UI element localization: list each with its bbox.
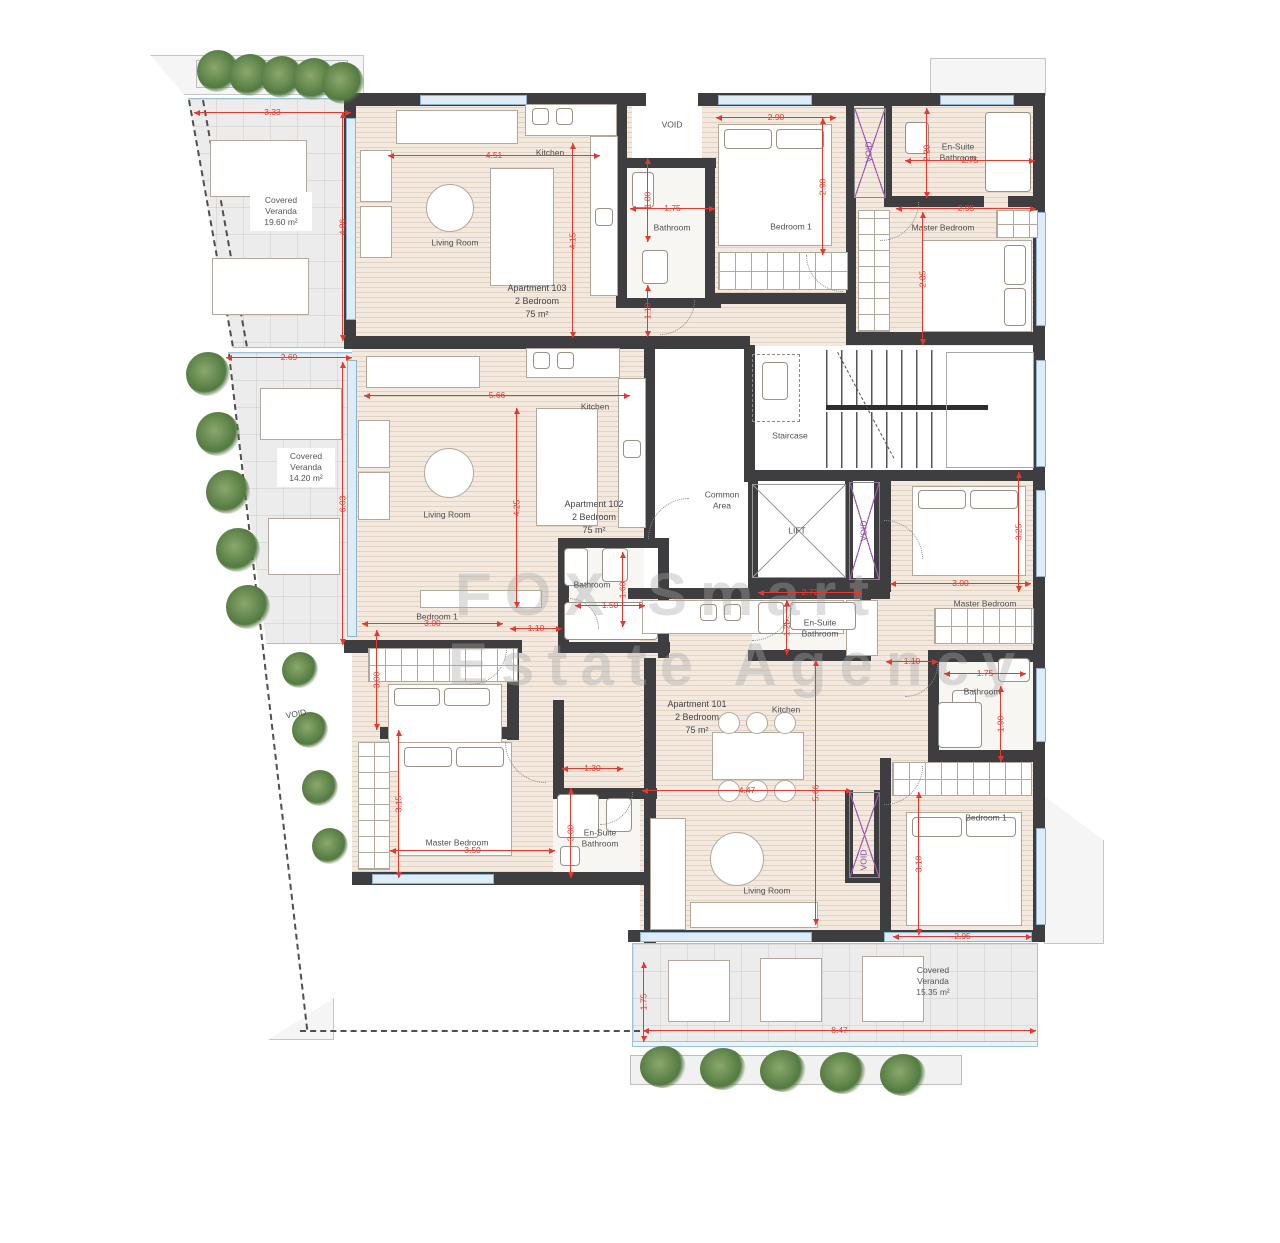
veranda-label-3: Covered Veranda 15.35 m² [898,962,968,1001]
dimension-label: 3.00 [371,672,381,689]
window [1036,490,1046,577]
dimension: 1.25 [786,600,787,655]
dimension-label: 3.15 [393,796,403,813]
coffee-table [710,832,764,886]
dimension-label: 2.90 [817,178,827,195]
veranda-area: 14.20 m² [289,473,323,483]
dimension: 3.25 [1018,472,1019,592]
room-label-staircase: Staircase [772,431,807,442]
wall [928,750,1038,762]
outdoor-sofa [210,140,307,197]
dimension-label: 2.90 [766,112,787,122]
apartment-type: 2 Bedroom [675,712,719,722]
sink-icon [595,208,613,226]
room-label-void-shaft-top: VOID [864,142,875,163]
room-label-bathroom-101: Bathroom [964,687,1001,698]
veranda-glass-edge [632,1041,1038,1047]
dimension: 4.86 [342,112,343,341]
dimension: 1.75 [630,208,715,209]
dimension-label: 3.50 [462,845,483,855]
dimension: 1.10 [886,661,938,662]
plant [302,770,338,806]
room-label-lift: LIFT [788,526,805,537]
coffee-table [426,184,474,232]
stair-steps [826,350,946,406]
dimension: 2.85 [922,212,923,345]
apartment-type: 2 Bedroom [515,296,559,306]
room-label-bedroom1-101: Bedroom 1 [965,813,1007,824]
wall [853,332,1045,345]
dimension: 3.00 [890,583,1031,584]
pillow [1004,288,1026,326]
dimension: 2.69 [226,357,352,358]
dimension: 1.50 [575,605,645,606]
apartment-type: 2 Bedroom [572,512,616,522]
dimension-label: 1.10 [902,656,923,666]
dimension-label: 4.15 [567,232,577,249]
dimension-label: 1.75 [638,994,648,1011]
outdoor-seat [668,960,730,1022]
dimension-label: 5.66 [810,784,820,801]
dimension-label: 5.66 [487,390,508,400]
room-label-ensuite-102: En-Suite Bathroom [569,827,631,848]
pillow [970,490,1018,509]
armchair [358,420,390,468]
wall [705,158,715,308]
room-label-bathroom-102: Bathroom [574,580,611,591]
dimension: 2.20 [926,108,927,198]
wall [715,293,850,304]
dimension-label: 2.72 [800,587,821,597]
room-label-bathroom-103: Bathroom [654,223,691,234]
dimension-label: 2.95 [952,931,973,941]
plant [760,1050,806,1092]
window [940,95,1014,105]
dimension-label: 2.20 [921,145,931,162]
dimension-label: 3.00 [950,578,971,588]
pillow [1004,245,1026,285]
stair-steps [826,412,946,468]
room-label-living-room-103: Living Room [431,238,478,249]
dimension: 3.15 [398,730,399,878]
window [420,95,527,105]
dimension-label: 2.95 [956,203,977,213]
dimension: 3.33 [194,112,351,113]
dining-table [712,732,804,780]
dimension: 2.75 [905,160,1035,161]
stove-icon [533,352,550,369]
dimension-label: 3.33 [262,107,283,117]
pillow [456,747,504,767]
veranda-name: Covered Veranda [917,965,949,986]
dimension: 6.03 [342,362,343,645]
plant [880,1054,926,1096]
plant [226,585,270,629]
dimension: 2.72 [758,592,862,593]
plant [640,1046,686,1088]
plant [282,652,318,688]
stair-landing [946,352,1034,468]
room-label-living-room-101: Living Room [743,886,790,897]
apartment-name: Apartment 103 [507,283,566,293]
window [640,932,812,942]
apartment-area: 75 m² [582,525,605,535]
pillow [776,129,824,149]
plant [186,352,230,396]
stove-icon [557,352,574,369]
wardrobe [358,742,390,870]
sofa [366,356,480,388]
outdoor-seat [760,958,822,1022]
dimension-label: 4.25 [511,500,521,517]
wall [616,158,716,168]
room-label-void-shaft-bottom: VOID [859,850,870,871]
floor-plan: FOX Smart Estate Agency Living Room Kitc… [0,0,1280,1243]
stove-icon [556,108,573,125]
veranda-area: 15.35 m² [916,987,950,997]
veranda-label-1: Covered Veranda 19.60 m² [250,192,312,231]
veranda-name: Covered Veranda [290,451,322,472]
dimension-label: 3.25 [1013,524,1023,541]
window [1036,360,1046,467]
dimension-label: 4.47 [737,785,758,795]
coffee-table [424,448,474,498]
boundary-dashed-line [300,1030,640,1032]
outdoor-sofa [260,388,342,440]
dimension-label: 4.86 [337,218,347,235]
dimension-label: 1.25 [781,619,791,636]
shower-icon [938,702,982,748]
wardrobe [996,210,1038,238]
site-boundary [268,998,334,1040]
window [347,360,357,637]
plant [196,412,240,456]
dimension: 1.90 [1000,686,1001,762]
dimension-label: 1.10 [526,623,547,633]
outdoor-sofa [212,258,309,315]
plant [206,470,250,514]
pillow [912,817,962,837]
dimension: 3.50 [390,850,555,851]
bathtub-icon [985,112,1031,192]
room-label-kitchen-101: Kitchen [772,705,800,716]
dimension: 4.51 [388,155,600,156]
room-label-kitchen-103: Kitchen [536,148,564,159]
dimension: 1.75 [944,673,1026,674]
dimension-label: 2.75 [960,155,981,165]
dimension-label: 1.60 [617,581,627,598]
toilet-icon [642,250,668,284]
toilet-icon [762,362,788,400]
apartment-area: 75 m² [685,725,708,735]
dimension: 1.10 [510,628,562,629]
dimension-label: 1.50 [600,600,621,610]
plant [700,1048,746,1090]
dimension-label: 1.80 [642,192,652,209]
dining-chair [746,712,768,734]
wall [553,700,564,792]
window [718,95,812,105]
sofa [690,902,818,928]
dimension: 5.66 [364,395,630,396]
dimension: 3.10 [918,792,919,935]
site-boundary [1044,796,1104,944]
pillow [404,747,452,767]
dimension: 3.00 [362,623,503,624]
armchair [360,206,392,258]
room-label-living-room-102: Living Room [423,510,470,521]
plant [312,828,348,864]
dimension: 3.00 [376,630,377,730]
pillow [724,129,772,149]
dimension: 1.10 [647,285,648,337]
dimension-label: 1.75 [662,203,683,213]
dimension: 5.66 [815,660,816,925]
wall [558,538,662,548]
dining-table [490,168,554,286]
dimension-label: 6.03 [337,495,347,512]
plant [820,1052,866,1094]
dimension-label: 3.00 [565,825,575,842]
dimension-label: 2.69 [279,352,300,362]
dimension: 1.60 [622,552,623,627]
veranda-name: Covered Veranda [265,195,297,216]
sofa [650,818,686,930]
window [372,874,494,884]
room-label-master-bedroom-101: Master Bedroom [954,599,1017,610]
dimension-label: 2.85 [917,270,927,287]
dimension-label: 1.75 [975,668,996,678]
room-label-void-shaft-mid: VOID [859,521,870,542]
dimension: 8.47 [643,1030,1036,1031]
dimension-label: 3.10 [913,855,923,872]
dimension: 4.15 [572,143,573,338]
wall [846,106,854,198]
dimension: 3.00 [570,788,571,878]
room-label-master-bedroom-103: Master Bedroom [912,223,975,234]
dimension: 1.80 [647,158,648,242]
apartment-name: Apartment 101 [667,699,726,709]
room-label-void-top: VOID [662,120,683,131]
plant [322,62,364,104]
pillow [394,688,440,706]
veranda-label-2: Covered Veranda 14.20 m² [277,448,335,487]
room-label-ensuite-101: En-Suite Bathroom [789,617,851,638]
window [1036,828,1046,925]
apartment-name: Apartment 102 [564,499,623,509]
dimension: 4.25 [516,408,517,608]
stove-icon [532,108,549,125]
dimension: 2.95 [893,936,1032,937]
armchair [358,472,390,520]
site-boundary [930,58,1046,96]
dimension: 2.90 [822,118,823,255]
room-label-common-area: Common Area [698,489,746,510]
room-label-kitchen-102: Kitchen [581,402,609,413]
dimension-label: 1.30 [582,763,603,773]
wall [744,470,1045,481]
dimension: 4.47 [642,790,852,791]
dining-chair [774,780,796,802]
veranda-area: 19.60 m² [264,217,298,227]
apartment-102-info: Apartment 102 2 Bedroom 75 m² [564,498,623,537]
dimension: 2.95 [896,208,1036,209]
outdoor-sofa [268,518,340,575]
dimension: 2.90 [716,117,836,118]
dimension-label: 8.47 [829,1025,850,1035]
dimension-label: 3.00 [422,618,443,628]
apartment-area: 75 m² [525,309,548,319]
pillow [918,490,966,509]
dimension-label: 1.90 [995,716,1005,733]
room-label-bedroom1-103: Bedroom 1 [770,222,812,233]
plant [216,528,260,572]
sofa [396,110,518,144]
sink-icon [623,440,641,458]
apartment-103-info: Apartment 103 2 Bedroom 75 m² [507,282,566,321]
dimension-label: 1.10 [642,303,652,320]
window [1036,668,1046,742]
watermark-line2: Estate Agency [448,630,1028,699]
window [346,118,356,320]
apartment-101-info: Apartment 101 2 Bedroom 75 m² [667,698,726,737]
dimension: 1.30 [562,768,623,769]
dimension-label: 4.51 [484,150,505,160]
